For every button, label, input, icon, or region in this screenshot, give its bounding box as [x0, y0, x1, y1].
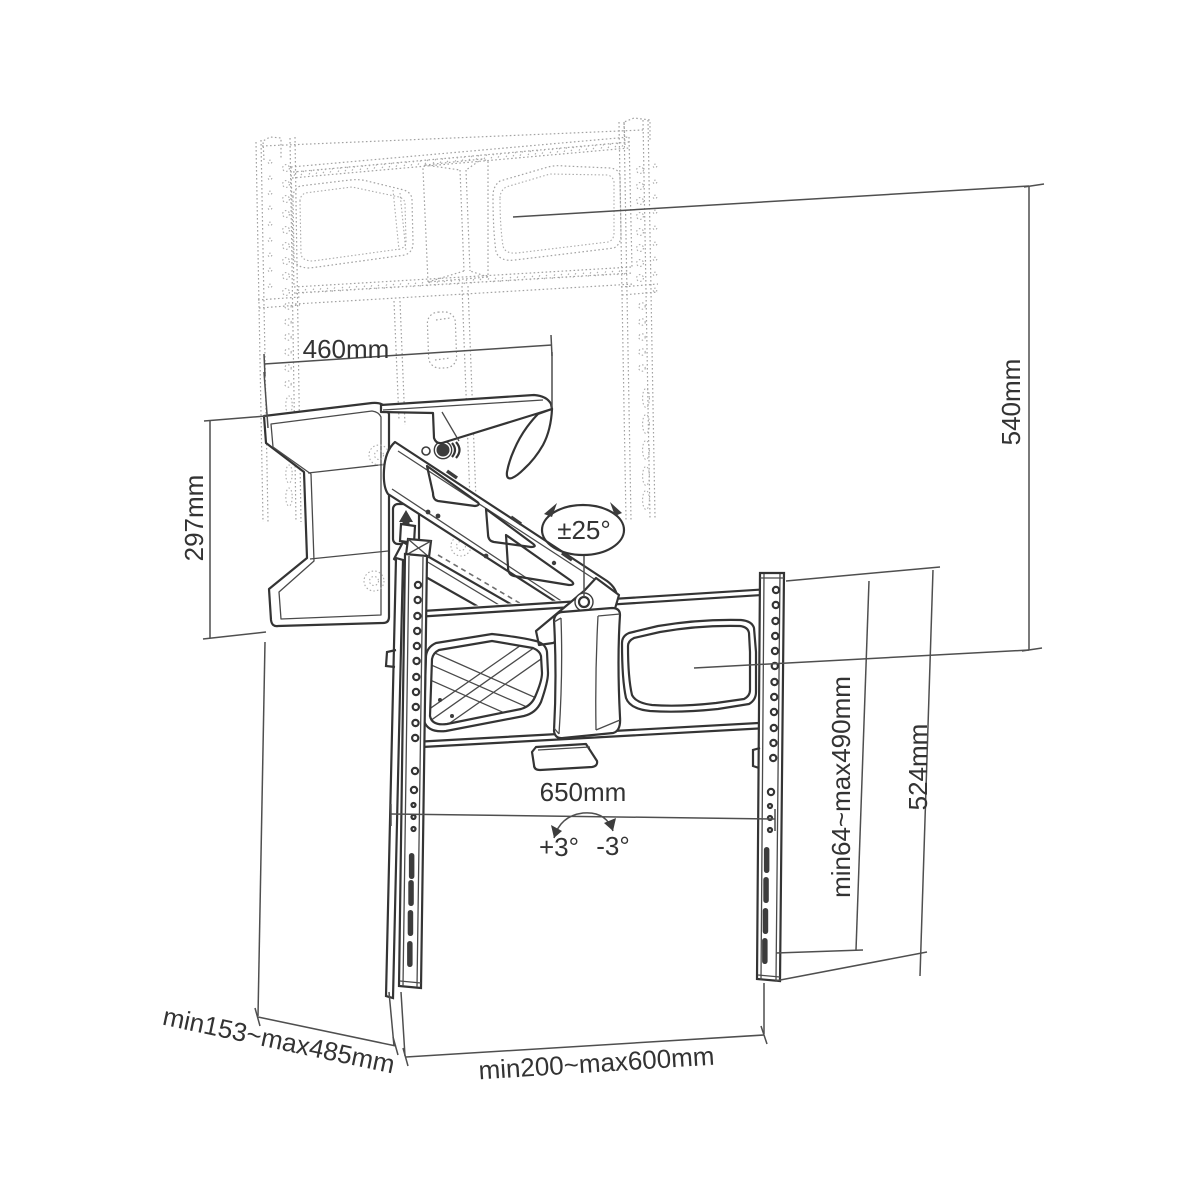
svg-text:min64~max490mm: min64~max490mm [826, 676, 856, 898]
svg-text:min200~max600mm: min200~max600mm [478, 1041, 716, 1086]
svg-text:524mm: 524mm [903, 724, 933, 811]
svg-text:650mm: 650mm [540, 777, 627, 807]
svg-text:540mm: 540mm [996, 359, 1026, 446]
svg-text:297mm: 297mm [179, 475, 209, 562]
svg-text:±25°: ±25° [557, 515, 611, 545]
svg-text:+3°: +3° [539, 832, 579, 862]
svg-text:-3°: -3° [596, 831, 630, 861]
svg-text:min153~max485mm: min153~max485mm [160, 1001, 397, 1079]
svg-text:460mm: 460mm [303, 334, 390, 364]
